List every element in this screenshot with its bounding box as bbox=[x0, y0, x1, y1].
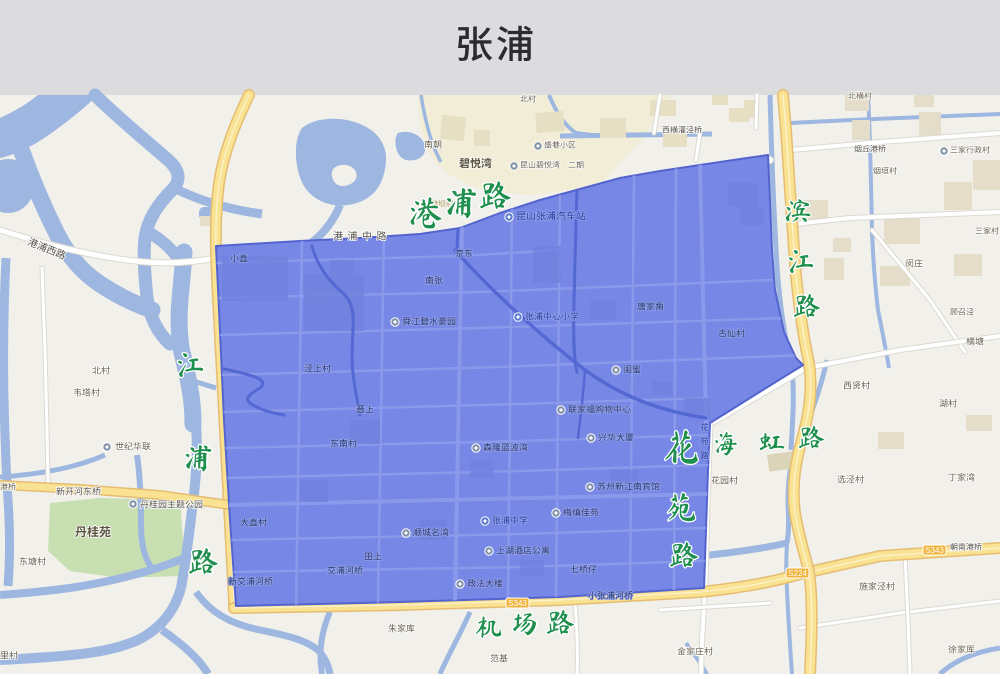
svg-text:S224: S224 bbox=[788, 569, 807, 578]
svg-text:S343: S343 bbox=[508, 599, 527, 608]
svg-text:S343: S343 bbox=[925, 546, 944, 555]
